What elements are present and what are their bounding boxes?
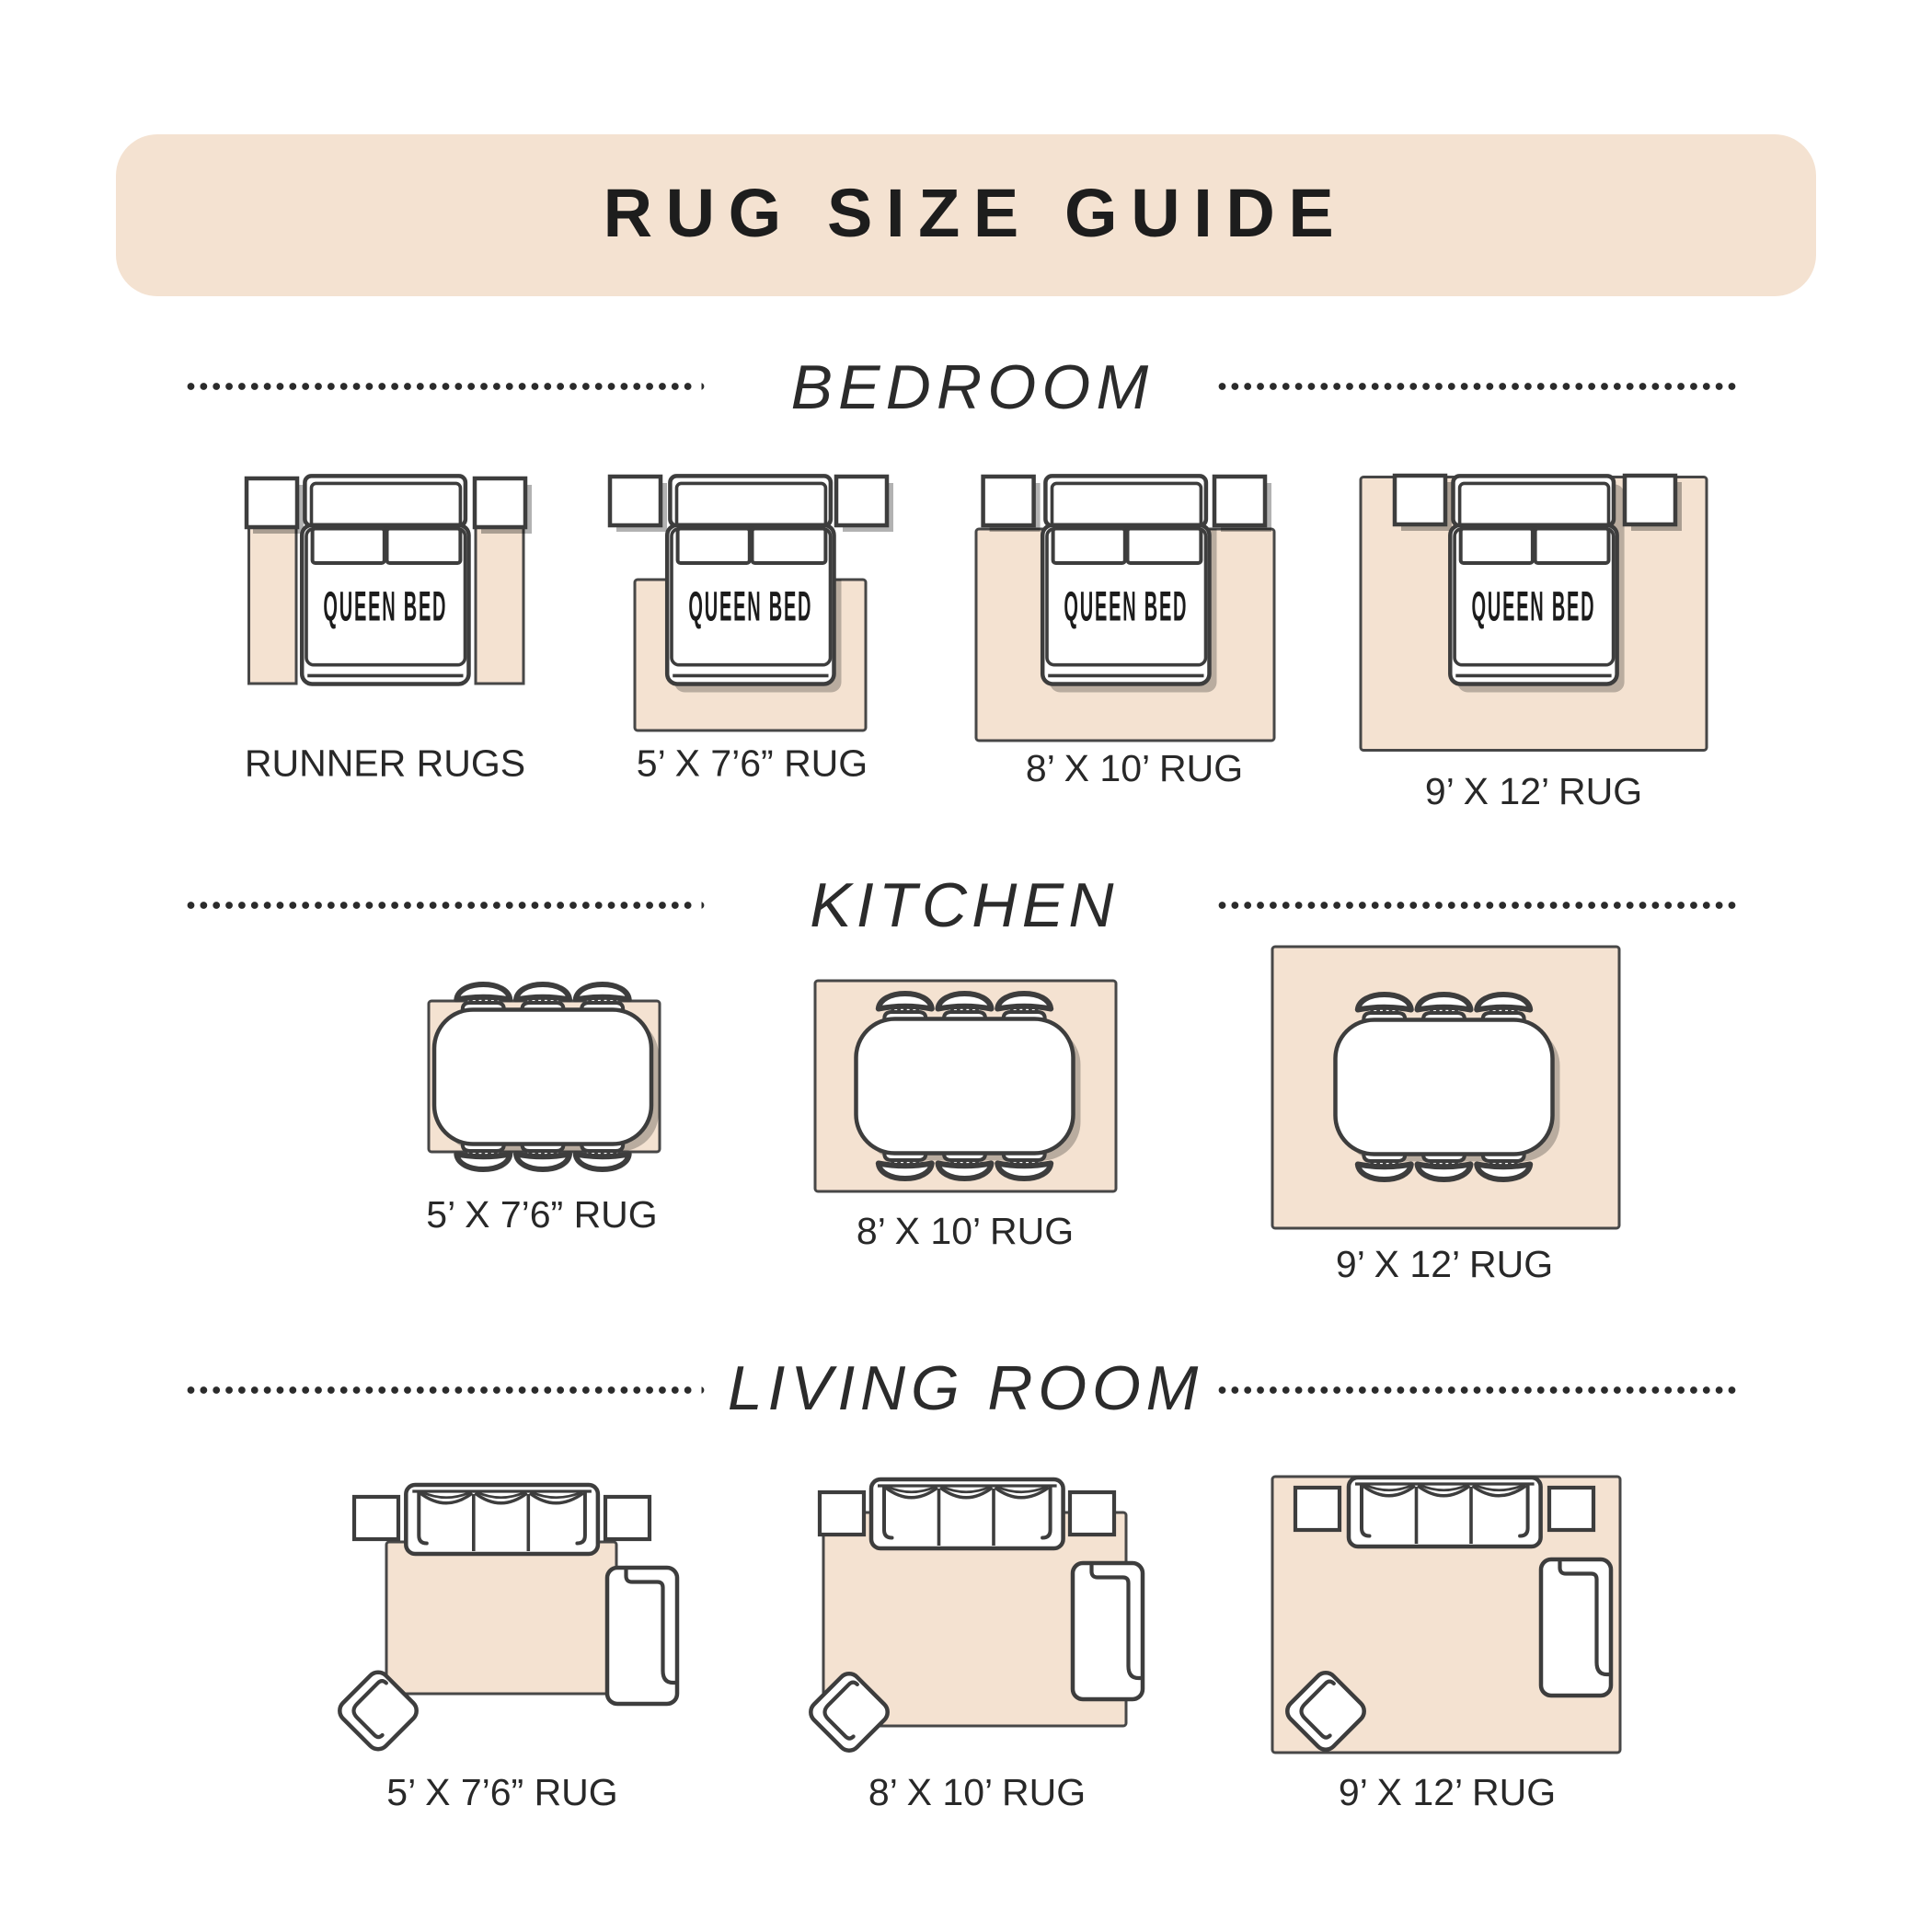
svg-text:9’ X 12’ RUG: 9’ X 12’ RUG [1425, 770, 1642, 812]
svg-text:8’ X 10’ RUG: 8’ X 10’ RUG [857, 1210, 1074, 1252]
svg-text:8’ X 10’ RUG: 8’ X 10’ RUG [868, 1771, 1086, 1813]
svg-text:9’ X 12’ RUG: 9’ X 12’ RUG [1339, 1771, 1556, 1813]
svg-text:5’ X 7’6” RUG: 5’ X 7’6” RUG [386, 1771, 617, 1813]
svg-text:9’ X 12’ RUG: 9’ X 12’ RUG [1336, 1243, 1553, 1285]
svg-text:8’ X 10’ RUG: 8’ X 10’ RUG [1026, 747, 1243, 789]
svg-text:BEDROOM: BEDROOM [791, 352, 1155, 422]
svg-text:LIVING ROOM: LIVING ROOM [728, 1353, 1203, 1423]
svg-text:RUG SIZE GUIDE: RUG SIZE GUIDE [604, 175, 1348, 251]
svg-text:KITCHEN: KITCHEN [810, 870, 1119, 940]
svg-text:5’ X 7’6” RUG: 5’ X 7’6” RUG [426, 1193, 657, 1236]
svg-text:RUNNER RUGS: RUNNER RUGS [245, 742, 525, 785]
svg-text:5’ X 7’6” RUG: 5’ X 7’6” RUG [637, 742, 868, 785]
